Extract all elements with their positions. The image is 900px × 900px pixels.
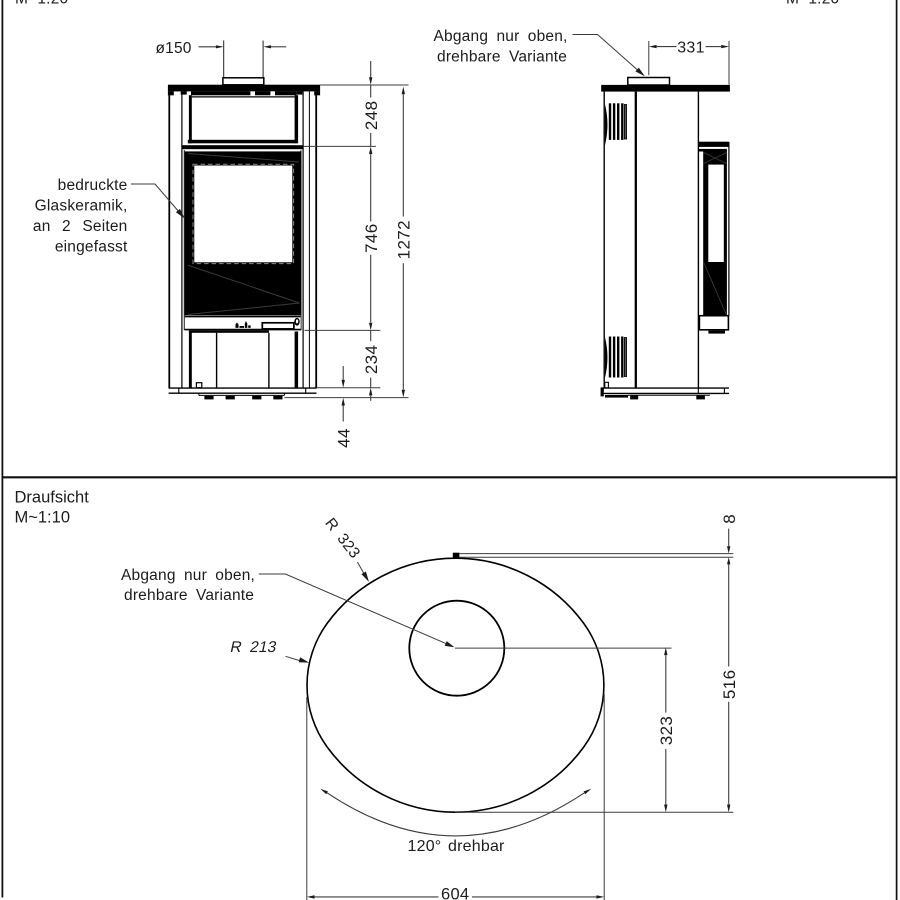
- svg-text:M~1:20: M~1:20: [15, 0, 69, 8]
- svg-text:R 213: R 213: [229, 639, 279, 656]
- svg-text:eingefasst: eingefasst: [55, 239, 128, 256]
- svg-text:ø150: ø150: [156, 40, 192, 57]
- svg-text:248: 248: [362, 101, 381, 131]
- svg-text:Glaskeramik,: Glaskeramik,: [35, 198, 128, 215]
- svg-text:120° drehbar: 120° drehbar: [408, 838, 506, 855]
- svg-text:604: 604: [441, 886, 469, 900]
- svg-text:drehbare Variante: drehbare Variante: [124, 587, 254, 604]
- svg-text:an 2 Seiten: an 2 Seiten: [33, 218, 128, 235]
- svg-text:44: 44: [334, 428, 353, 448]
- svg-text:331: 331: [677, 40, 705, 57]
- svg-text:M~1:10: M~1:10: [15, 509, 71, 527]
- svg-text:234: 234: [362, 345, 381, 375]
- svg-text:1272: 1272: [395, 220, 414, 259]
- svg-text:323: 323: [657, 716, 676, 746]
- svg-text:Abgang nur oben,: Abgang nur oben,: [434, 28, 568, 45]
- svg-text:drehbare Variante: drehbare Variante: [437, 49, 567, 66]
- svg-text:516: 516: [720, 670, 739, 700]
- svg-text:bedruckte: bedruckte: [58, 177, 128, 194]
- svg-text:746: 746: [362, 223, 381, 253]
- svg-text:Abgang nur oben,: Abgang nur oben,: [121, 567, 255, 584]
- svg-text:Draufsicht: Draufsicht: [15, 489, 90, 507]
- svg-text:8: 8: [720, 514, 739, 524]
- svg-text:M~1:20: M~1:20: [786, 0, 840, 8]
